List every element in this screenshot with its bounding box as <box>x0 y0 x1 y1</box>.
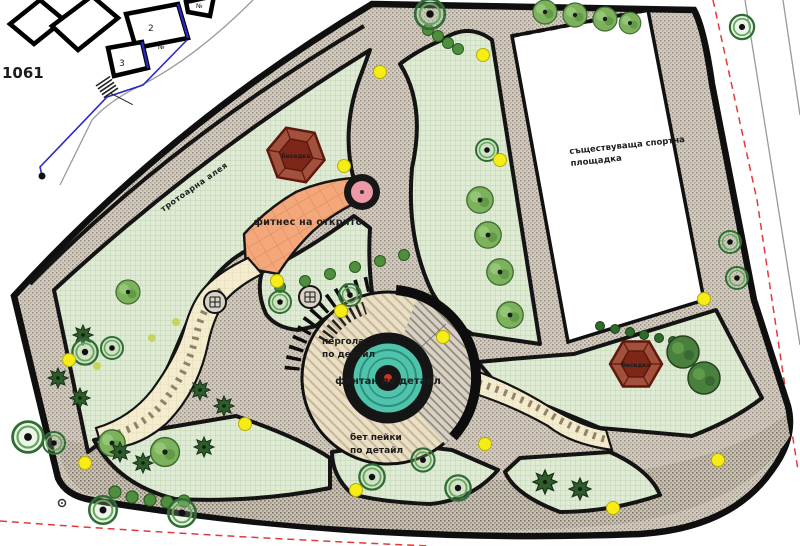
lamp-dot <box>374 66 387 79</box>
benches-label-line1: бет пейки <box>350 432 402 443</box>
tree-leafy <box>475 222 501 248</box>
gazebo-right-label: беседка <box>622 362 651 369</box>
tree-large <box>688 362 720 394</box>
lamp-dot <box>350 484 363 497</box>
tree-leafy <box>116 280 140 304</box>
lamp-dot <box>79 457 92 470</box>
lamp-dot <box>479 438 492 451</box>
tree-conifer <box>48 368 68 388</box>
building-number-2: 2 <box>148 24 154 34</box>
lamp-dot <box>437 331 450 344</box>
plan-drawing: съществуваща спортна площадка пергола по… <box>0 0 800 546</box>
boundary-point <box>39 173 46 180</box>
tree-conifer <box>194 437 214 457</box>
bush <box>109 486 121 498</box>
tree-leafy <box>497 302 523 328</box>
building-no-mark: № <box>195 2 203 10</box>
tree-conifer <box>70 388 90 408</box>
tree-conifer <box>190 380 210 400</box>
benches-label-line2: по детайл <box>350 446 403 456</box>
hedge-bush <box>611 325 620 334</box>
lamp-dot <box>607 502 620 515</box>
fitness-label: фитнес на открито <box>254 217 363 228</box>
lamp-dot <box>494 154 507 167</box>
tree-ring <box>730 15 754 39</box>
gazebo-top-label: беседка <box>282 153 311 160</box>
pergola-label-line2: по детайл <box>322 350 375 360</box>
lamp-dot <box>712 454 725 467</box>
tree-leafy <box>151 438 180 467</box>
lamp-dot <box>63 354 76 367</box>
tree-ring <box>415 0 445 29</box>
gazebo-right: беседка <box>610 342 662 387</box>
hedge-bush <box>640 331 649 340</box>
bush <box>453 44 464 55</box>
bush <box>126 491 138 503</box>
tree-leafy <box>487 259 513 285</box>
tree-leafy <box>467 187 493 213</box>
site-plan-canvas: съществуваща спортна площадка пергола по… <box>0 0 800 546</box>
hedge-bush <box>626 328 635 337</box>
tree-ring <box>89 496 117 524</box>
tree-ring <box>101 337 123 359</box>
junction-dot <box>360 190 364 194</box>
ground-cover <box>172 318 180 326</box>
building-number-3: 3 <box>119 59 125 69</box>
building-outline <box>108 42 148 76</box>
path-junction-node <box>344 174 380 210</box>
tree-conifer <box>214 396 234 416</box>
tree-ring <box>13 422 44 453</box>
tree-ring <box>719 231 741 253</box>
tree-ring <box>445 475 470 500</box>
feature-table-circle <box>299 286 321 308</box>
parcel-number-label: 1061 <box>2 64 44 82</box>
tree-ring <box>411 448 434 471</box>
tree-ring <box>339 284 361 306</box>
tree-conifer <box>133 453 153 473</box>
bush <box>399 250 410 261</box>
bush <box>433 31 444 42</box>
bush <box>300 276 311 287</box>
ground-cover <box>93 362 101 370</box>
tree-large <box>667 336 699 368</box>
tree-leafy <box>593 7 617 31</box>
tree-ring <box>359 464 384 489</box>
bush <box>144 494 156 506</box>
bush <box>350 262 361 273</box>
lamp-dot <box>239 418 252 431</box>
tree-ring <box>726 267 748 289</box>
lamp-dot <box>477 49 490 62</box>
tree-conifer <box>533 470 557 494</box>
lamp-dot <box>338 160 351 173</box>
lamp-dot <box>698 293 711 306</box>
bush <box>443 38 454 49</box>
hedge-bush <box>655 334 664 343</box>
tree-leafy <box>563 3 587 27</box>
bush <box>325 269 336 280</box>
tree-conifer <box>569 478 591 500</box>
feature-table-circle <box>204 291 226 313</box>
tree-ring <box>43 432 65 454</box>
fountain-label: фонтан по детайл <box>335 375 441 387</box>
building-no-mark: № <box>157 43 165 51</box>
pergola-label-line1: пергола <box>322 337 364 347</box>
tree-conifer <box>110 442 130 462</box>
tree-ring <box>269 291 291 313</box>
lamp-dot <box>271 275 284 288</box>
tree-ring <box>168 499 196 527</box>
lamp-dot <box>335 305 348 318</box>
bush <box>375 256 386 267</box>
survey-point <box>59 500 66 507</box>
ground-cover <box>148 334 156 342</box>
tree-leafy <box>619 12 641 34</box>
tree-ring <box>72 339 97 364</box>
hedge-bush <box>596 322 605 331</box>
tree-leafy <box>533 0 557 24</box>
